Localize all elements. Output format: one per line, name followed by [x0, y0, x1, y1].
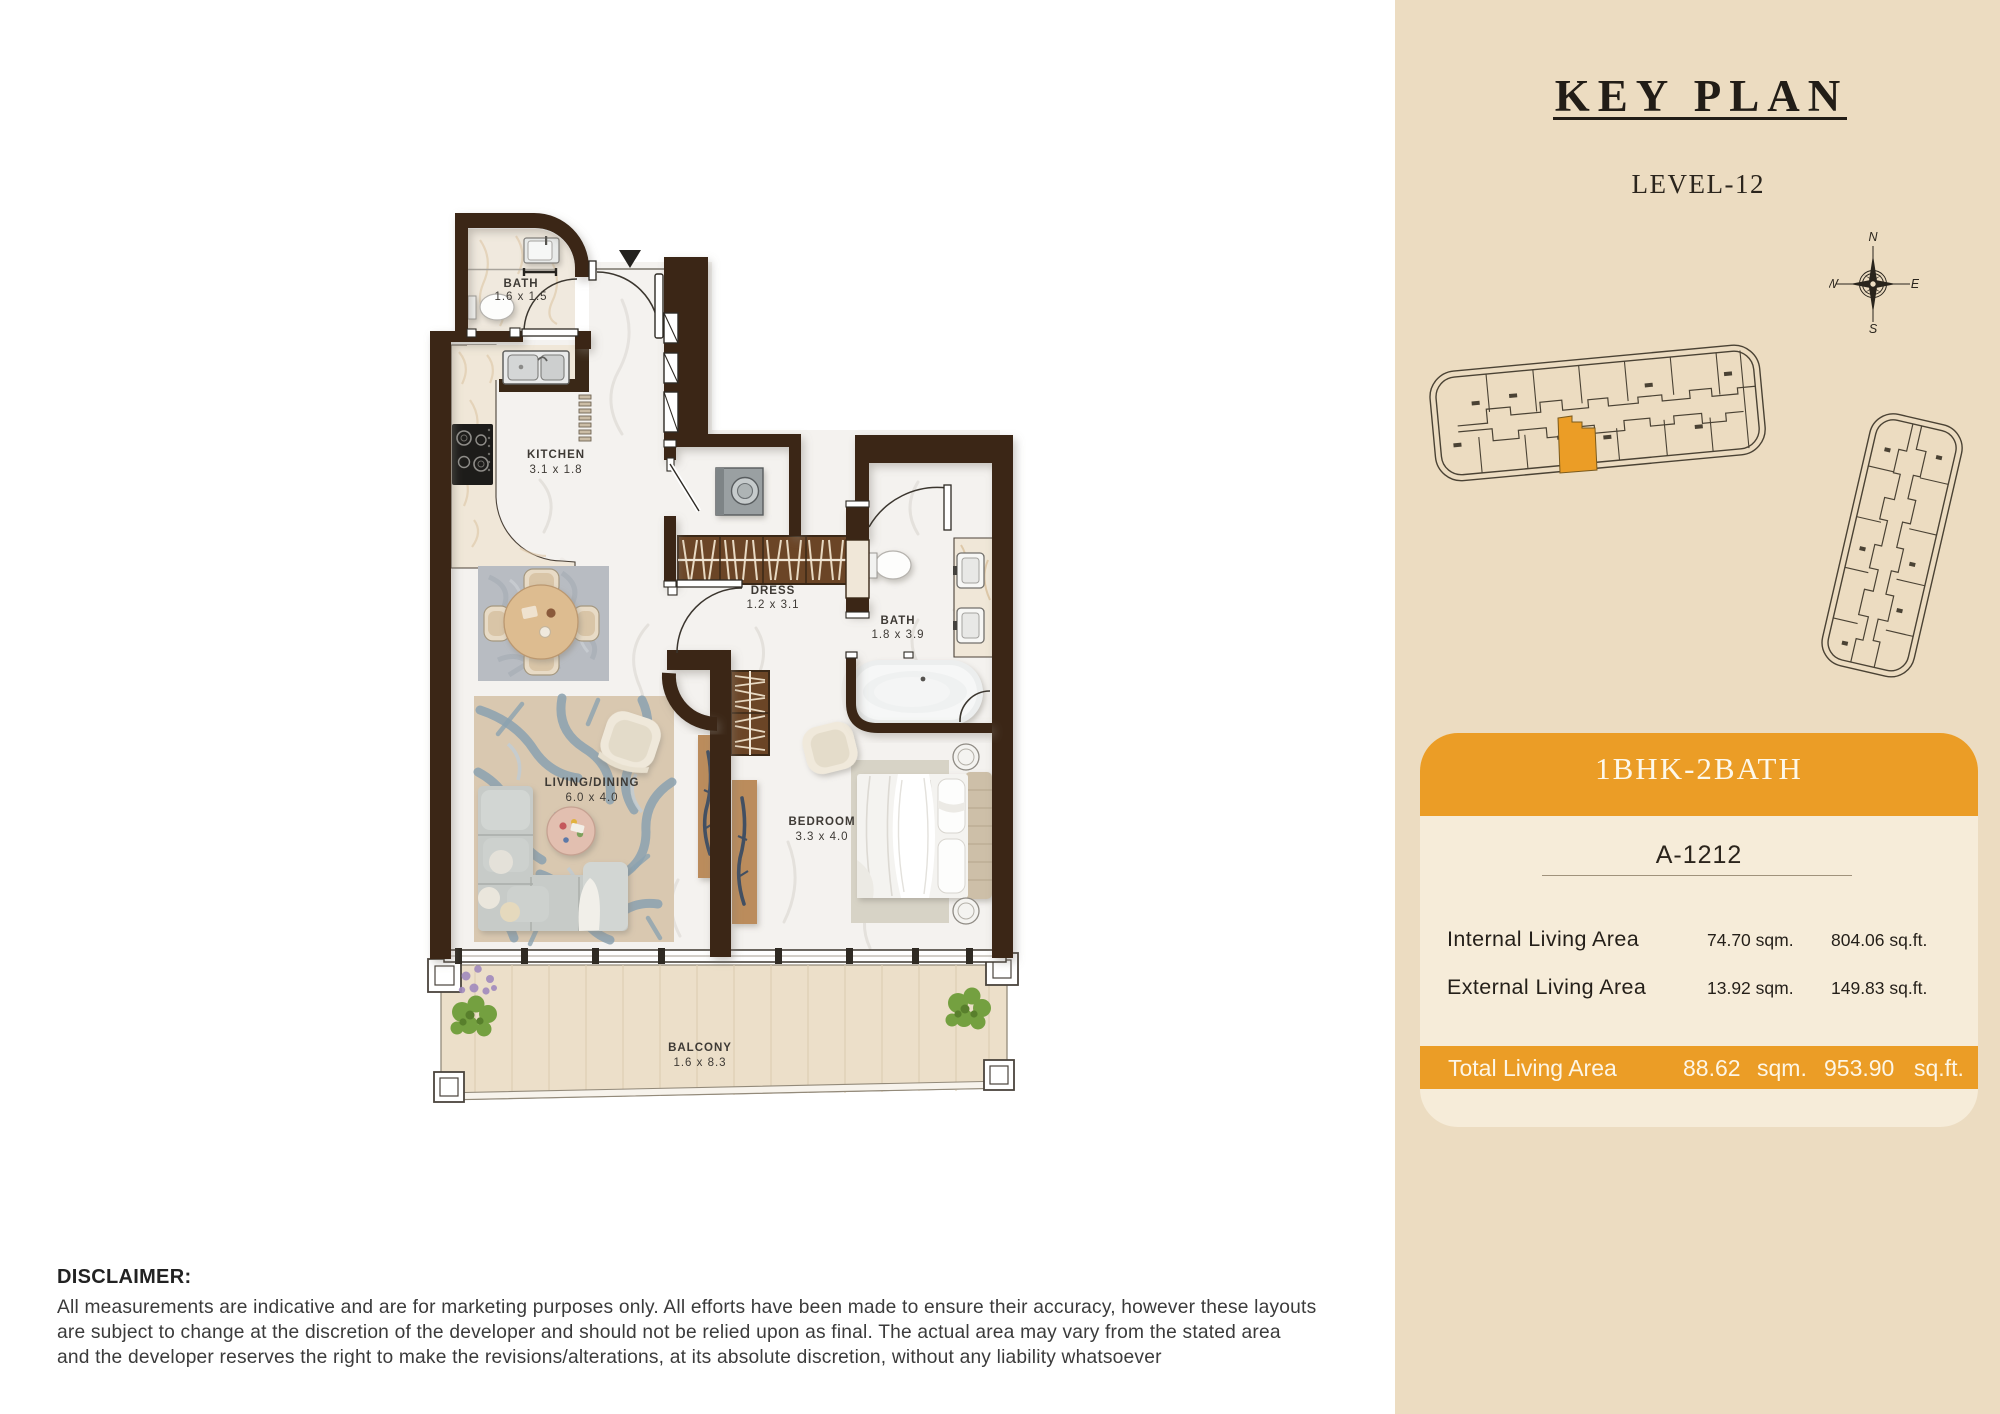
- svg-text:1.8 x 3.9: 1.8 x 3.9: [871, 629, 924, 641]
- svg-text:1.6 x 1.5: 1.6 x 1.5: [494, 291, 547, 303]
- svg-text:LIVING/DINING: LIVING/DINING: [545, 777, 640, 789]
- svg-text:3.1 x 1.8: 3.1 x 1.8: [529, 464, 582, 476]
- svg-text:E: E: [1911, 277, 1919, 291]
- svg-text:BALCONY: BALCONY: [668, 1042, 732, 1054]
- svg-text:BATH: BATH: [503, 278, 538, 290]
- svg-text:1.6 x 8.3: 1.6 x 8.3: [673, 1057, 726, 1069]
- svg-text:KITCHEN: KITCHEN: [527, 449, 585, 461]
- svg-text:DRESS: DRESS: [751, 585, 796, 597]
- svg-text:BEDROOM: BEDROOM: [788, 816, 855, 828]
- svg-text:1.2 x 3.1: 1.2 x 3.1: [746, 599, 799, 611]
- svg-text:BATH: BATH: [880, 615, 915, 627]
- svg-text:W: W: [1829, 277, 1839, 291]
- svg-text:6.0 x 4.0: 6.0 x 4.0: [565, 792, 618, 804]
- svg-text:3.3 x 4.0: 3.3 x 4.0: [795, 831, 848, 843]
- svg-text:N: N: [1868, 230, 1878, 244]
